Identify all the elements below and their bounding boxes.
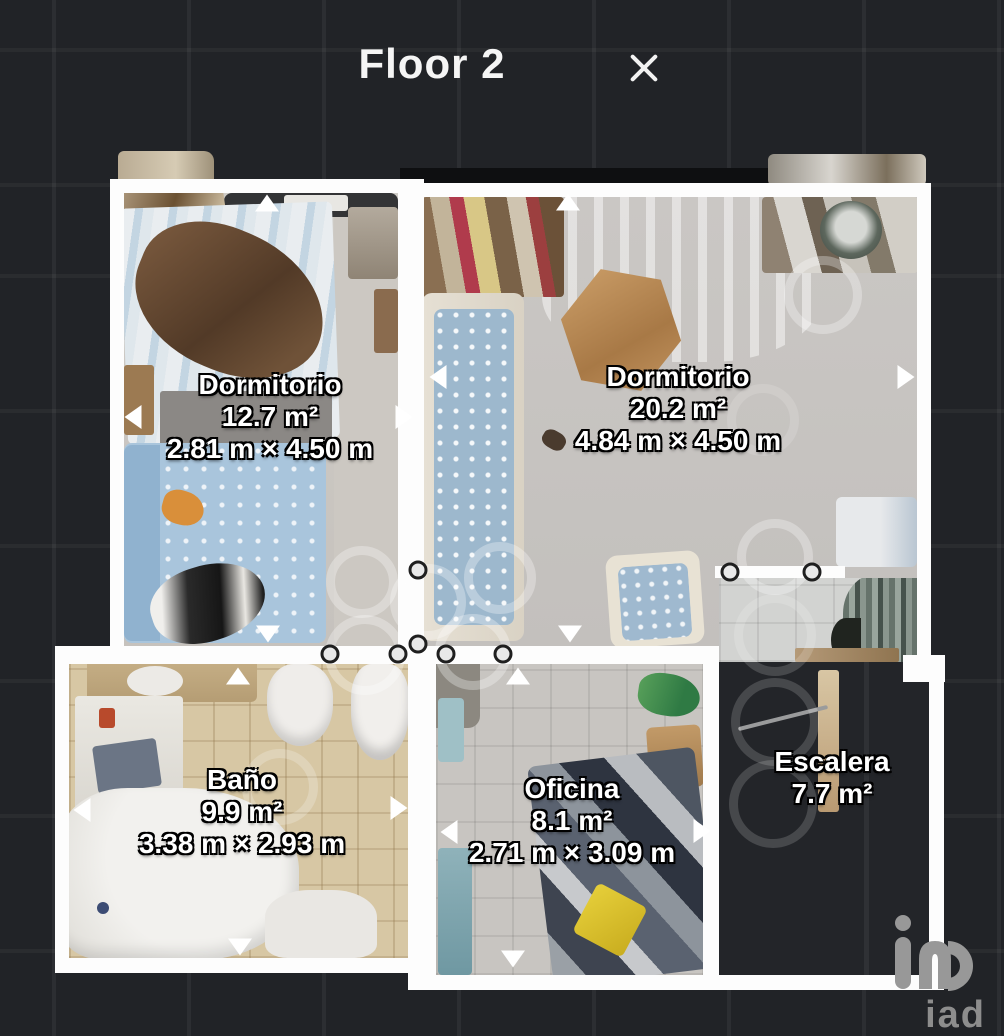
bidet <box>267 664 333 746</box>
green-object <box>635 670 702 720</box>
bookshelf <box>422 197 564 297</box>
waypoint-dot <box>409 635 428 654</box>
wall <box>929 680 944 990</box>
stair-stringer <box>818 670 839 812</box>
small-object <box>539 426 569 454</box>
towels <box>92 738 162 794</box>
close-icon[interactable] <box>622 46 666 90</box>
stair-edge <box>795 648 899 662</box>
room-dormitorio-1[interactable] <box>124 193 398 646</box>
waypoint-dot <box>437 645 456 664</box>
waypoint-dot <box>494 645 513 664</box>
nightstand <box>348 207 398 279</box>
iad-watermark-text: iad <box>890 1000 986 1030</box>
teal-cabinet <box>438 848 472 975</box>
wall <box>55 958 412 973</box>
wall <box>408 646 436 990</box>
wall <box>703 646 719 990</box>
sink <box>127 666 183 696</box>
sofa-cushions <box>434 309 514 625</box>
room-oficina[interactable] <box>436 664 703 975</box>
small-object <box>97 902 109 914</box>
shower-tray <box>265 890 377 958</box>
waypoint-dot <box>803 563 822 582</box>
armchair-cushion <box>618 563 693 642</box>
room-bano[interactable] <box>69 664 408 958</box>
desk-chair <box>820 201 882 259</box>
waypoint-dot <box>721 563 740 582</box>
floorplan-viewer: Floor 2 <box>0 0 1004 1036</box>
stair-landing[interactable] <box>719 578 917 662</box>
wall <box>110 179 124 660</box>
page-title: Floor 2 <box>0 40 1004 88</box>
side-table <box>374 289 398 353</box>
grid-line <box>864 660 869 977</box>
red-item <box>99 708 115 728</box>
room-escalera[interactable] <box>719 660 931 977</box>
wall <box>110 179 412 193</box>
handrail <box>738 705 828 731</box>
wall <box>55 646 719 664</box>
toilet <box>351 664 408 760</box>
waypoint-dot <box>409 561 428 580</box>
wall <box>398 183 931 197</box>
wall <box>903 655 945 682</box>
wall <box>408 975 944 990</box>
furniture-overhang <box>768 154 926 186</box>
wall <box>55 650 69 973</box>
teal-shelf <box>438 698 464 762</box>
waypoint-dot <box>321 645 340 664</box>
wall <box>917 183 931 673</box>
waypoint-dot <box>389 645 408 664</box>
white-furniture <box>836 497 917 567</box>
